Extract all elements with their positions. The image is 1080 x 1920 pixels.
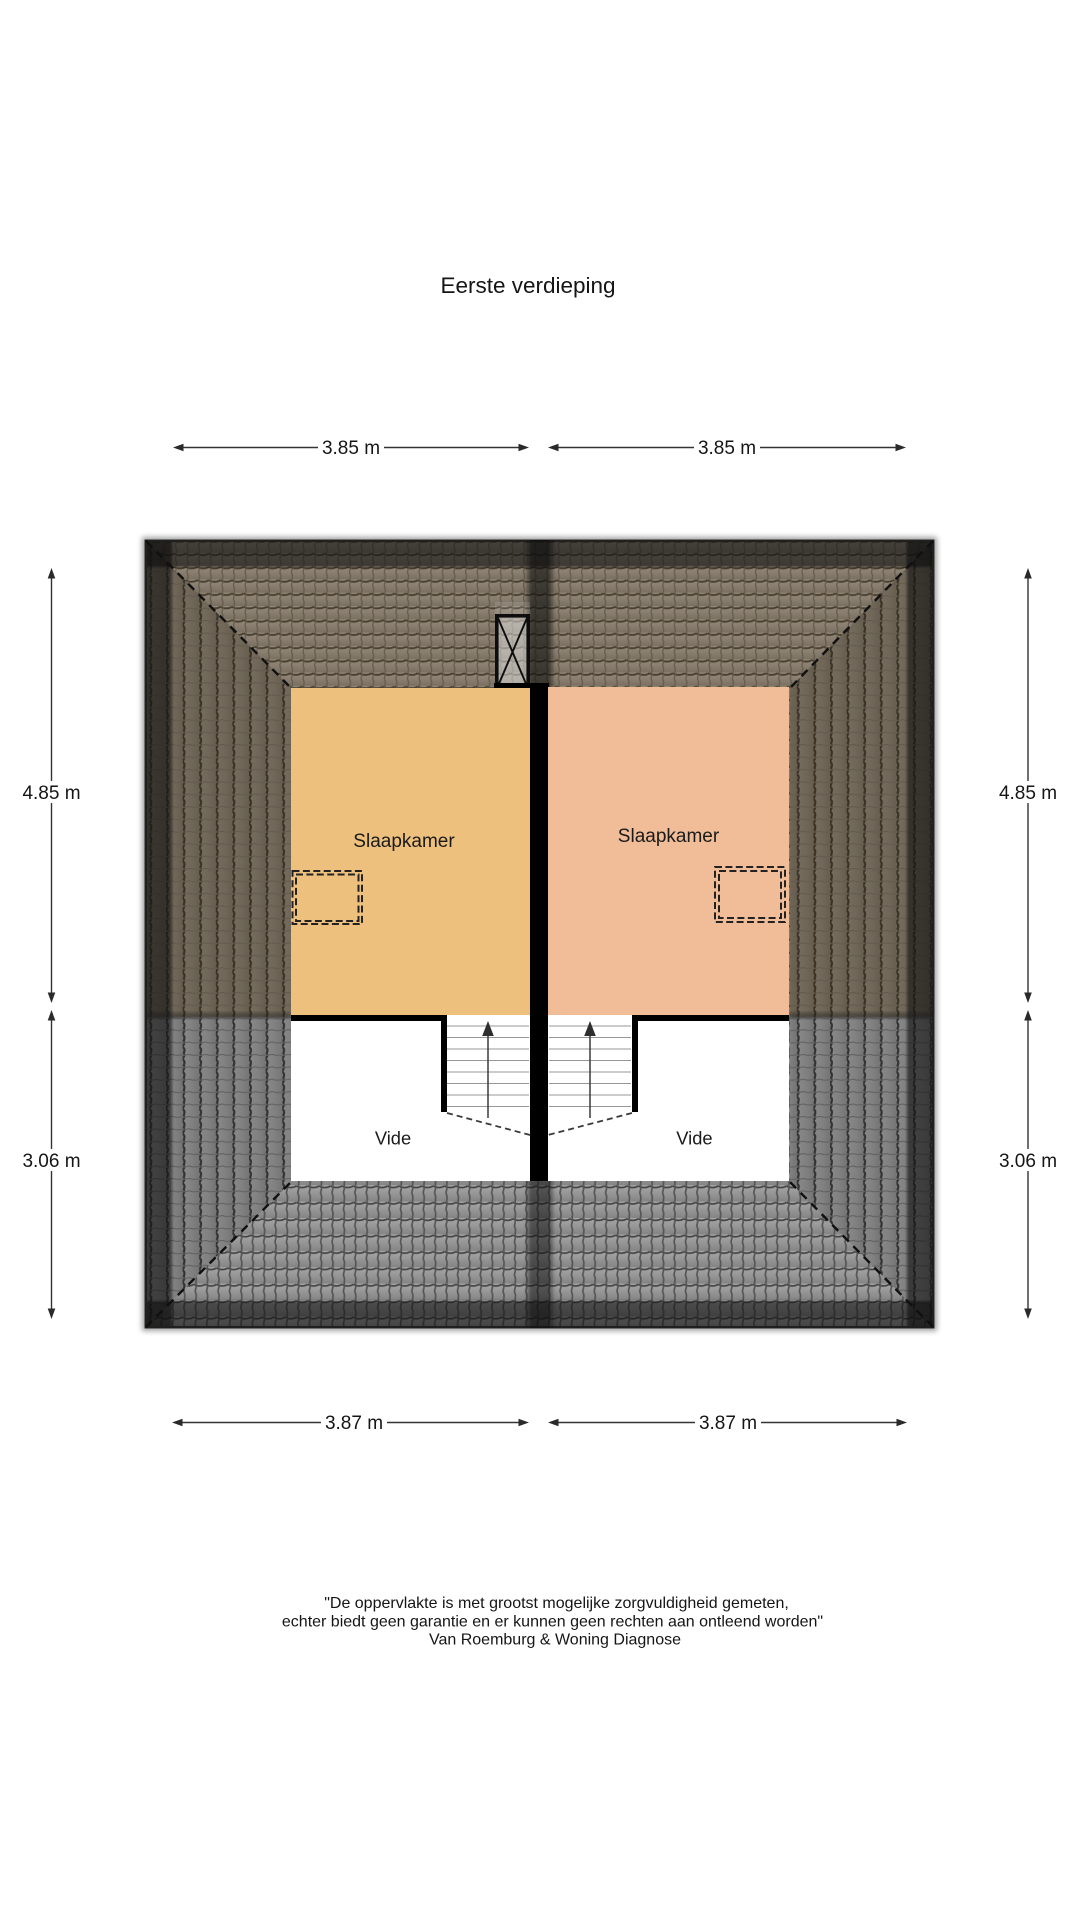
svg-text:3.06 m: 3.06 m <box>22 1151 80 1172</box>
svg-text:3.85 m: 3.85 m <box>698 438 756 459</box>
svg-text:Slaapkamer: Slaapkamer <box>618 826 720 847</box>
svg-text:4.85 m: 4.85 m <box>999 783 1057 804</box>
svg-text:3.87 m: 3.87 m <box>699 1413 757 1434</box>
svg-text:Vide: Vide <box>676 1128 712 1149</box>
svg-text:"De oppervlakte is met grootst: "De oppervlakte is met grootst mogelijke… <box>324 1595 789 1612</box>
svg-text:4.85 m: 4.85 m <box>22 783 80 804</box>
svg-text:Vide: Vide <box>375 1128 411 1149</box>
svg-text:echter biedt geen garantie en: echter biedt geen garantie en er kunnen … <box>282 1613 823 1630</box>
svg-text:Eerste verdieping: Eerste verdieping <box>440 273 615 298</box>
svg-text:Van Roemburg & Woning Diagnose: Van Roemburg & Woning Diagnose <box>429 1632 681 1649</box>
svg-text:3.06 m: 3.06 m <box>999 1151 1057 1172</box>
svg-text:3.85 m: 3.85 m <box>322 438 380 459</box>
svg-text:3.87 m: 3.87 m <box>325 1413 383 1434</box>
svg-text:Slaapkamer: Slaapkamer <box>353 831 455 852</box>
